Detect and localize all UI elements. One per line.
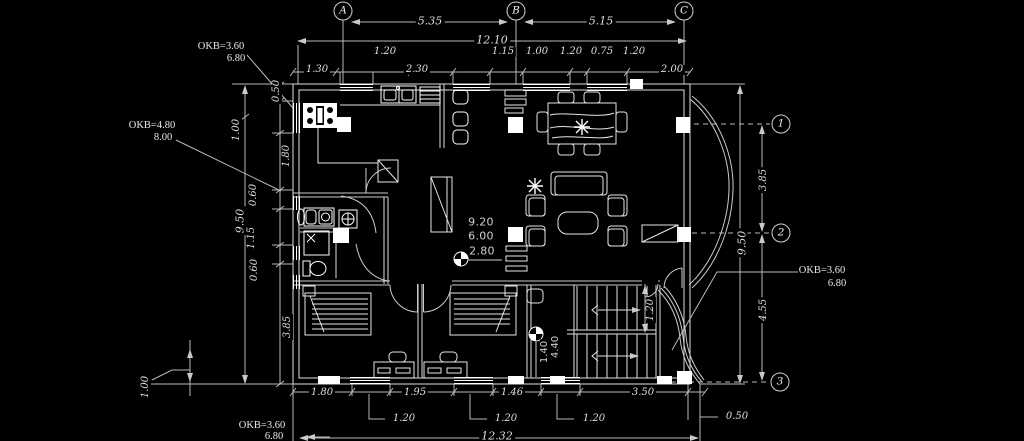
grid-bubble-2: 2 — [772, 224, 791, 243]
okb-right-2: 6.80 — [826, 279, 848, 290]
dim-left-chain: 0.60 — [250, 257, 260, 283]
dim-left-chain: 1.15 — [247, 225, 257, 251]
dim-left-chain: 0.60 — [249, 182, 259, 208]
columns — [318, 79, 692, 384]
grid-bubble-a: A — [334, 2, 353, 21]
dim-left-chain: 1.00 — [232, 117, 242, 143]
shower-icon — [304, 231, 329, 255]
dining-area — [505, 90, 627, 155]
dim-top-callout: 1.20 — [621, 47, 647, 57]
bar-stools — [453, 90, 468, 144]
dim-bottom-total: 12.32 — [479, 431, 515, 441]
dim-left-chain: 1.80 — [282, 143, 292, 169]
dim-top-callout: 1.15 — [490, 47, 516, 57]
okb-top-left-2: 6.80 — [225, 54, 247, 65]
dim-right-total: 9.50 — [737, 229, 748, 258]
dim-stair-width: 1.20 — [646, 297, 656, 323]
grid-bubble-1: 1 — [772, 115, 791, 134]
dim-span-bc: 5.15 — [587, 16, 616, 27]
dim-right-span12: 3.85 — [759, 167, 769, 193]
grid-bubble-b: B — [507, 2, 526, 21]
floor-level: 2.80 — [467, 246, 497, 257]
bay-window-wall — [689, 96, 733, 288]
toilet-icon — [303, 261, 326, 276]
right-cabinet — [642, 225, 678, 242]
dish-rack-icon — [420, 87, 440, 103]
dim-window-callout: 1.20 — [493, 414, 519, 424]
dim-top-chain: 1.30 — [304, 65, 330, 75]
hall-shelf-icon — [506, 246, 527, 271]
dim-top-callout: 0.75 — [589, 47, 615, 57]
stair-direction-arrow — [592, 305, 640, 361]
dim-bottom-chain: 3.50 — [630, 388, 656, 398]
dim-left-chain: 0.50 — [272, 78, 282, 104]
dim-top-total: 12.10 — [474, 35, 510, 46]
bed — [305, 293, 371, 335]
okb-bottom: OKB=3.60 — [237, 421, 287, 432]
stove-icon — [303, 103, 337, 128]
dim-top-callout: 1.20 — [558, 47, 584, 57]
armchairs — [526, 195, 627, 246]
dim-ground-offset: 1.00 — [141, 374, 151, 400]
entrance-door-arc — [664, 268, 682, 288]
dim-right-span23: 4.55 — [759, 297, 769, 323]
dim-top-chain: 2.30 — [404, 65, 430, 75]
dim-left-total: 9.50 — [235, 207, 246, 236]
floor-plan-canvas: A B C 1 2 3 5.35 5.15 12.10 1.20 1.15 1.… — [0, 0, 1024, 441]
sink-icon — [381, 86, 416, 103]
desk — [424, 352, 467, 378]
floor-level: 9.20 — [466, 217, 496, 228]
desk — [374, 352, 414, 378]
dim-bottom-chain: 1.46 — [499, 388, 525, 398]
dim-bottom-chain: 1.95 — [402, 388, 428, 398]
plant-icon — [574, 119, 590, 135]
double-door-arcs — [390, 284, 451, 312]
floor-plan-drawing — [0, 0, 1024, 441]
bedrooms — [303, 284, 517, 378]
floor-level: 6.00 — [466, 231, 496, 242]
bed — [450, 293, 516, 335]
plant-icon — [527, 178, 543, 194]
coffee-table — [558, 212, 598, 234]
okb-right: OKB=3.60 — [797, 266, 847, 277]
extractor-fan-icon — [339, 210, 357, 228]
sofa — [551, 172, 607, 195]
dim-window-callout: 1.20 — [391, 414, 417, 424]
nightstand — [505, 286, 517, 296]
okb-mid-left: OKB=4.80 — [127, 121, 177, 132]
okb-bottom-2: 6.80 — [263, 432, 285, 441]
dim-window-callout: 1.20 — [581, 414, 607, 424]
okb-mid-left-2: 8.00 — [152, 133, 174, 144]
grid-bubble-3: 3 — [771, 373, 790, 392]
stair-level: 1.40 — [540, 339, 550, 365]
washbasin-icon — [298, 208, 335, 226]
sideboard-icon — [505, 90, 526, 113]
okb-top-left: OKB=3.60 — [196, 42, 246, 53]
dim-top-callout: 1.00 — [524, 47, 550, 57]
dim-bottom-chain: 1.80 — [309, 388, 335, 398]
grid-bubble-c: C — [675, 2, 694, 21]
wardrobe-cabinet — [431, 177, 452, 232]
dim-top-callout: 1.20 — [372, 47, 398, 57]
dim-span-ab: 5.35 — [416, 16, 445, 27]
stair-level: 4.40 — [551, 334, 561, 360]
dim-edge-offset: 0.50 — [724, 412, 750, 422]
dim-top-chain: 2.00 — [659, 65, 685, 75]
dim-left-chain: 3.85 — [283, 314, 293, 340]
